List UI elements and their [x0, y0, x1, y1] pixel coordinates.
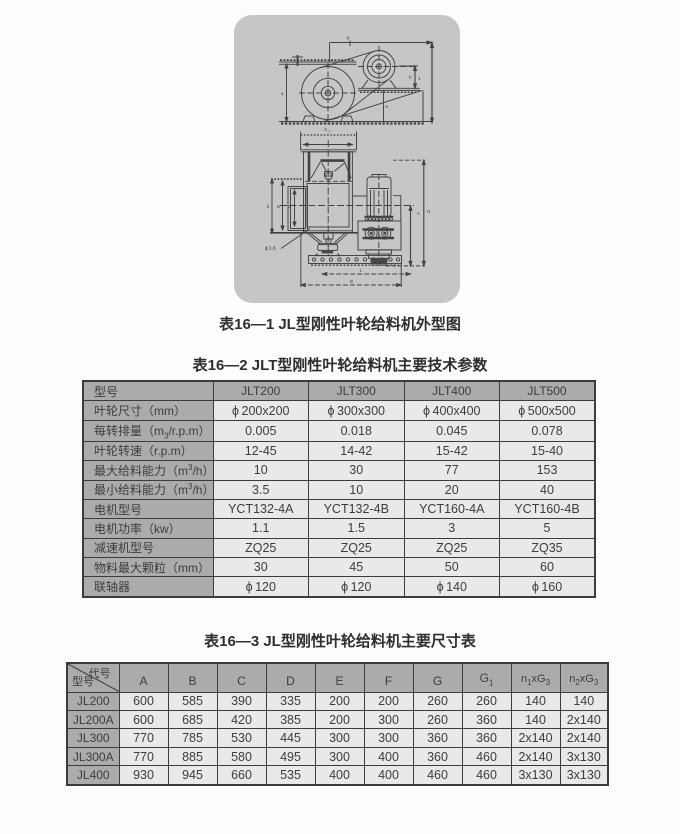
svg-text:H: H	[427, 209, 430, 214]
svg-text:e: e	[386, 104, 389, 109]
svg-text:h: h	[409, 75, 412, 80]
svg-text:ϕ 1.6: ϕ 1.6	[265, 246, 276, 252]
svg-text:d: d	[289, 204, 292, 209]
svg-text:B: B	[350, 279, 353, 284]
svg-text:L: L	[360, 268, 363, 273]
svg-text:A: A	[417, 211, 420, 216]
svg-text:B: B	[277, 204, 280, 209]
svg-text:1: 1	[329, 130, 331, 134]
svg-text:b: b	[267, 204, 270, 209]
svg-text:b: b	[347, 36, 350, 41]
svg-text:1: 1	[418, 76, 421, 81]
svg-text:a: a	[281, 91, 284, 96]
svg-text:b: b	[325, 127, 328, 132]
